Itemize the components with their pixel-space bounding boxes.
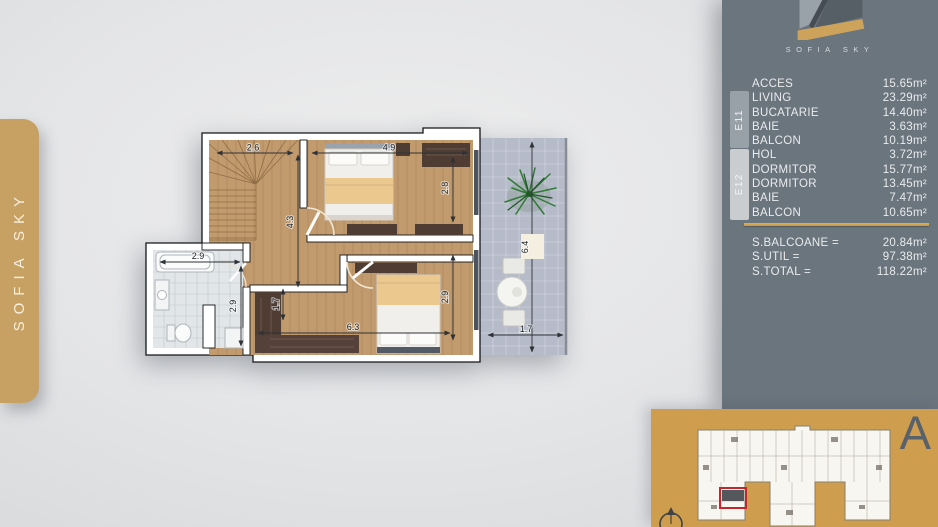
brand-ribbon: SOFIA SKY xyxy=(0,119,39,403)
dim-bedroom1-width: 4.9 xyxy=(383,143,396,153)
room-label: LIVING xyxy=(752,91,792,105)
summary-row: S.BALCOANE =20.84m² xyxy=(752,236,927,251)
site-panel: A xyxy=(651,409,938,527)
room-row: BUCATARIE14.40m² xyxy=(752,106,927,120)
brand-logo-icon xyxy=(784,0,876,40)
room-area: 3.72m² xyxy=(889,148,927,162)
brand-ribbon-label: SOFIA SKY xyxy=(11,190,28,331)
unit-tab-e12-label: E12 xyxy=(734,173,745,195)
room-row: LIVING23.29m² xyxy=(752,91,927,105)
brand-logo-text: SOFIA SKY xyxy=(722,45,938,54)
room-area: 3.63m² xyxy=(889,120,927,134)
room-label: DORMITOR xyxy=(752,163,817,177)
room-row: DORMITOR15.77m² xyxy=(752,163,927,177)
dim-closet: 1.7 xyxy=(271,298,281,311)
gold-divider xyxy=(744,223,929,226)
room-label: BUCATARIE xyxy=(752,106,819,120)
dim-bathroom-width: 2.9 xyxy=(192,251,205,261)
room-row: DORMITOR13.45m² xyxy=(752,177,927,191)
summary-row: S.UTIL =97.38m² xyxy=(752,250,927,265)
summary-value: 118.22m² xyxy=(877,265,927,280)
dim-balcony-width: 1.7 xyxy=(520,324,533,334)
unit-tab-e12[interactable]: E12 xyxy=(730,149,749,221)
floor-plan: 2.6 4.3 4.9 2.8 2.9 2.9 1.7 6.3 2.9 6.4 … xyxy=(140,122,575,367)
room-label: HOL xyxy=(752,148,777,162)
unit-tab-e11[interactable]: E11 xyxy=(730,91,749,148)
summary-list: S.BALCOANE =20.84m² S.UTIL =97.38m² S.TO… xyxy=(722,236,938,280)
room-area: 23.29m² xyxy=(883,91,927,105)
room-row: ACCES15.65m² xyxy=(752,77,927,91)
dim-bedroom2-height: 2.9 xyxy=(440,291,450,304)
room-label: BALCON xyxy=(752,206,801,220)
dim-balcony-length: 6.4 xyxy=(520,241,530,254)
room-list: E11 E12 ACCES15.65m² LIVING23.29m² BUCAT… xyxy=(722,77,938,220)
room-label: BAIE xyxy=(752,191,779,205)
room-row: BALCON10.19m² xyxy=(752,134,927,148)
room-row: BAIE3.63m² xyxy=(752,120,927,134)
room-label: DORMITOR xyxy=(752,177,817,191)
summary-label: S.BALCOANE = xyxy=(752,236,839,251)
room-area: 10.65m² xyxy=(883,206,927,220)
room-area: 14.40m² xyxy=(883,106,927,120)
summary-value: 97.38m² xyxy=(883,250,927,265)
unit-tab-e11-label: E11 xyxy=(734,109,745,131)
room-area: 13.45m² xyxy=(883,177,927,191)
canvas: SOFIA SKY xyxy=(0,0,938,527)
dim-bedroom1-height: 2.8 xyxy=(440,182,450,195)
room-label: ACCES xyxy=(752,77,793,91)
room-area: 15.77m² xyxy=(883,163,927,177)
summary-value: 20.84m² xyxy=(883,236,927,251)
summary-label: S.UTIL = xyxy=(752,250,800,265)
room-row: BAIE7.47m² xyxy=(752,191,927,205)
building-site-plan[interactable] xyxy=(691,425,897,527)
dim-bedroom2-width: 6.3 xyxy=(347,322,360,332)
dim-stair-height: 4.3 xyxy=(285,216,295,229)
dim-bathroom-height: 2.9 xyxy=(228,300,238,313)
room-row: BALCON10.65m² xyxy=(752,206,927,220)
room-area: 10.19m² xyxy=(883,134,927,148)
room-label: BAIE xyxy=(752,120,779,134)
dim-stair-width: 2.6 xyxy=(247,143,260,153)
summary-label: S.TOTAL = xyxy=(752,265,811,280)
room-area: 15.65m² xyxy=(883,77,927,91)
room-area: 7.47m² xyxy=(889,191,927,205)
summary-row: S.TOTAL =118.22m² xyxy=(752,265,927,280)
highlighted-unit xyxy=(722,490,744,501)
room-label: BALCON xyxy=(752,134,801,148)
window-bedroom1 xyxy=(474,150,479,215)
balcony-chair xyxy=(503,258,525,274)
window-bedroom2 xyxy=(474,250,479,330)
compass-icon xyxy=(657,505,697,527)
building-block-label: A xyxy=(900,409,931,456)
info-panel: SOFIA SKY E11 E12 ACCES15.65m² LIVING23.… xyxy=(722,0,938,410)
room-row: HOL3.72m² xyxy=(752,148,927,162)
